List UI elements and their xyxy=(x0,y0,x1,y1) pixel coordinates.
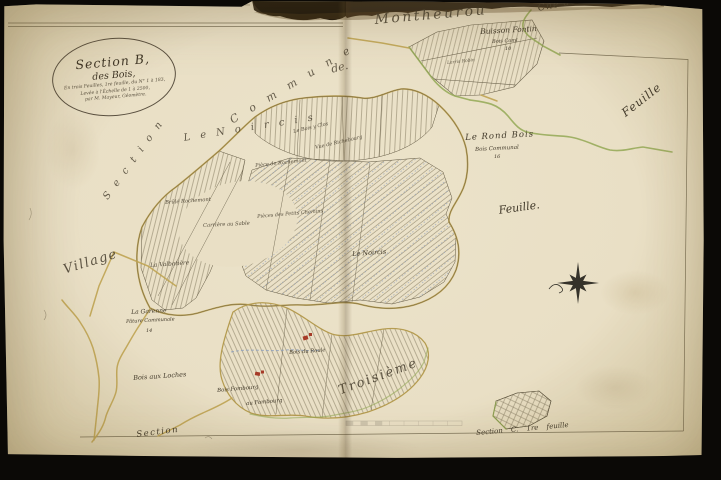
label-rond-bois-num: 16 xyxy=(494,155,500,160)
label-garenne-num: 14 xyxy=(146,329,152,334)
label-buisson-fontin-num: 10 xyxy=(505,47,511,52)
map-paper: Section B, des Bois, En trois Feuilles, … xyxy=(0,0,721,480)
compass-star-icon xyxy=(549,262,599,304)
scale-bar xyxy=(346,421,462,426)
scanned-map-sheet: Section B, des Bois, En trois Feuilles, … xyxy=(0,0,721,480)
